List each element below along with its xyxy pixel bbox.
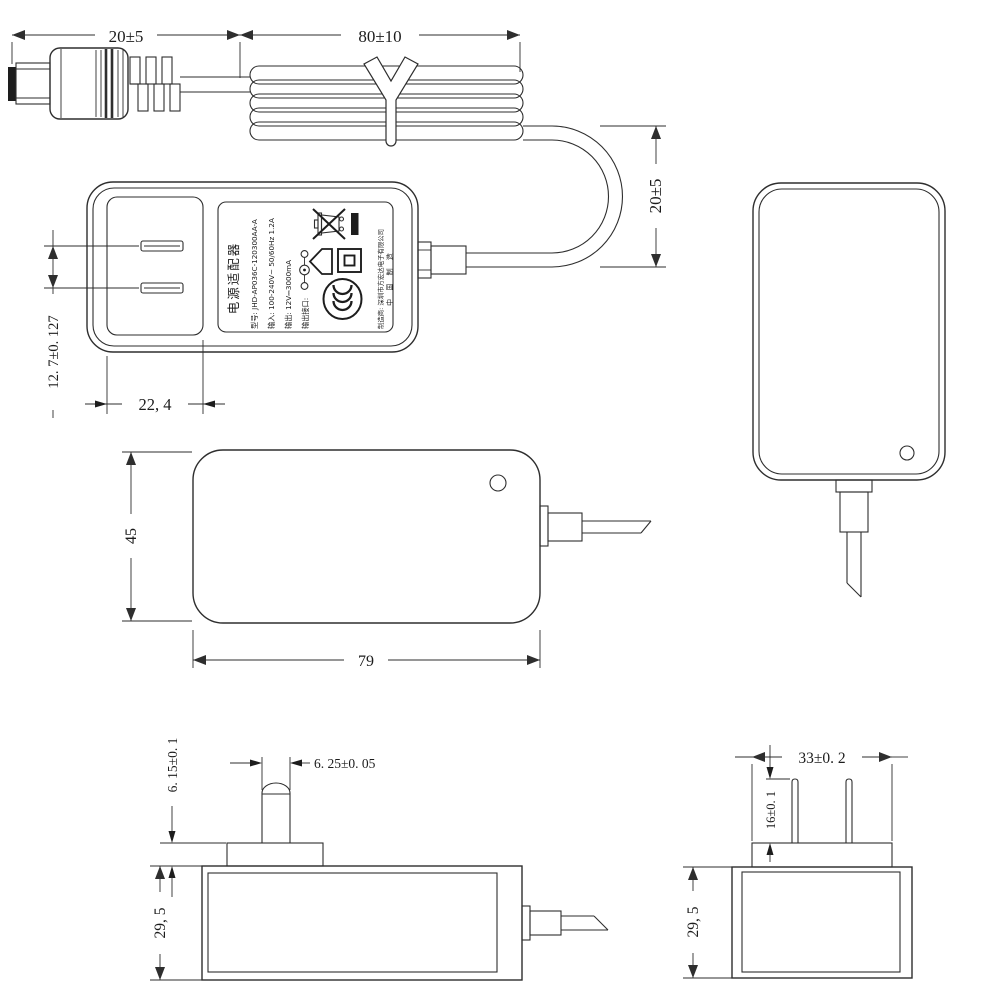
us-blade-edge-right	[846, 779, 852, 843]
us-plug-blade-bottom	[141, 283, 183, 293]
cord-flange	[540, 506, 548, 546]
dim-side-body-thickness-text: 29, 5	[152, 907, 169, 938]
cord-flange	[836, 480, 872, 492]
dim-front-body-height: 45	[122, 452, 192, 621]
dim-blade-length-text: 16±0. 1	[764, 791, 778, 829]
cord-bushing	[530, 911, 561, 935]
cord-loop	[466, 126, 622, 267]
adapter-front-body	[87, 182, 466, 352]
cord-flange	[522, 906, 530, 940]
front-view-with-cord: 电源适配器 型号: JHD-AP036C-120300AA-A 输入: 100-…	[8, 26, 666, 418]
dim-cord-loop-height-text: 20±5	[646, 179, 665, 214]
rating-label: 电源适配器 型号: JHD-AP036C-120300AA-A 输入: 100-…	[218, 202, 394, 332]
plug-riser	[227, 843, 323, 866]
weee-crossed-bin-icon	[313, 209, 345, 239]
dim-front-body-length-text: 79	[358, 653, 374, 670]
cord-tail	[847, 532, 861, 597]
cord-flange	[418, 242, 431, 278]
us-blade-edge-left	[792, 779, 798, 843]
us-plug-blade-top	[141, 241, 183, 251]
cord-bushing	[548, 513, 582, 541]
dim-pin-pitch-text: 12. 7±0. 127	[46, 315, 62, 388]
dim-cord-coil-length-text: 80±10	[358, 27, 401, 46]
dim-end-body-thickness-text: 29, 5	[685, 906, 702, 937]
label-output: 输出: 12V⎓3000mA	[284, 260, 293, 329]
dim-end-body-thickness: 29, 5	[683, 867, 732, 978]
ccc-mark-icon	[324, 279, 362, 319]
dim-riser-width: 33±0. 2	[735, 748, 908, 841]
blade-side-profile	[262, 783, 290, 843]
dim-riser-height-text: 6. 15±0. 1	[165, 738, 180, 793]
dim-blade-width-text: 6. 25±0. 05	[314, 756, 376, 771]
rear-view	[753, 183, 945, 597]
end-view: 33±0. 2 16±0. 1 29, 5	[683, 745, 912, 978]
cord-bushing	[840, 492, 868, 532]
dim-dc-plug-length-text: 20±5	[109, 27, 144, 46]
plug-strain-relief	[130, 57, 250, 111]
dim-side-body-thickness: 29, 5	[150, 866, 202, 980]
cord-tail	[582, 521, 651, 533]
dim-front-body-length: 79	[193, 630, 540, 670]
dim-riser-width-text: 33±0. 2	[798, 750, 845, 767]
indoor-use-house-icon	[310, 249, 332, 274]
drawing-canvas: 电源适配器 型号: JHD-AP036C-120300AA-A 输入: 100-…	[0, 0, 1000, 1000]
cable-tie	[364, 57, 418, 146]
label-manufacturer: 制造商: 深圳市方宏达电子有限公司	[376, 229, 385, 329]
label-made-in: 中 国 制 造	[385, 250, 394, 306]
class-ii-double-square-icon	[338, 249, 361, 272]
dim-pin-pitch: 12. 7±0. 127	[44, 230, 139, 418]
weee-bar-icon	[351, 213, 359, 235]
dim-blade-width: 6. 25±0. 05	[230, 756, 376, 790]
led-hole	[490, 475, 506, 491]
plug-tip	[8, 67, 16, 101]
cord-bushing	[431, 246, 466, 274]
polarity-icon	[300, 251, 310, 290]
bottom-profile-view: 6. 15±0. 1 6. 25±0. 05 29, 5	[150, 738, 608, 980]
label-input: 输入: 100-240V~ 50/60Hz 1.2A	[267, 218, 276, 329]
label-model: 型号: JHD-AP036C-120300AA-A	[250, 219, 259, 329]
plug-face-panel	[107, 197, 203, 335]
dim-cord-loop-height: 20±5	[600, 126, 666, 267]
label-title: 电源适配器	[226, 242, 241, 315]
side-view: 45 79	[122, 450, 651, 670]
dim-front-body-height-text: 45	[123, 528, 140, 544]
adapter-dimension-drawing: 电源适配器 型号: JHD-AP036C-120300AA-A 输入: 100-…	[0, 0, 1000, 1000]
cord-tail	[561, 916, 608, 930]
dim-plug-face-width-text: 22, 4	[139, 395, 172, 414]
label-output-port: 输出接口:	[301, 298, 310, 329]
led-hole	[900, 446, 914, 460]
dc-barrel-plug	[8, 48, 128, 119]
